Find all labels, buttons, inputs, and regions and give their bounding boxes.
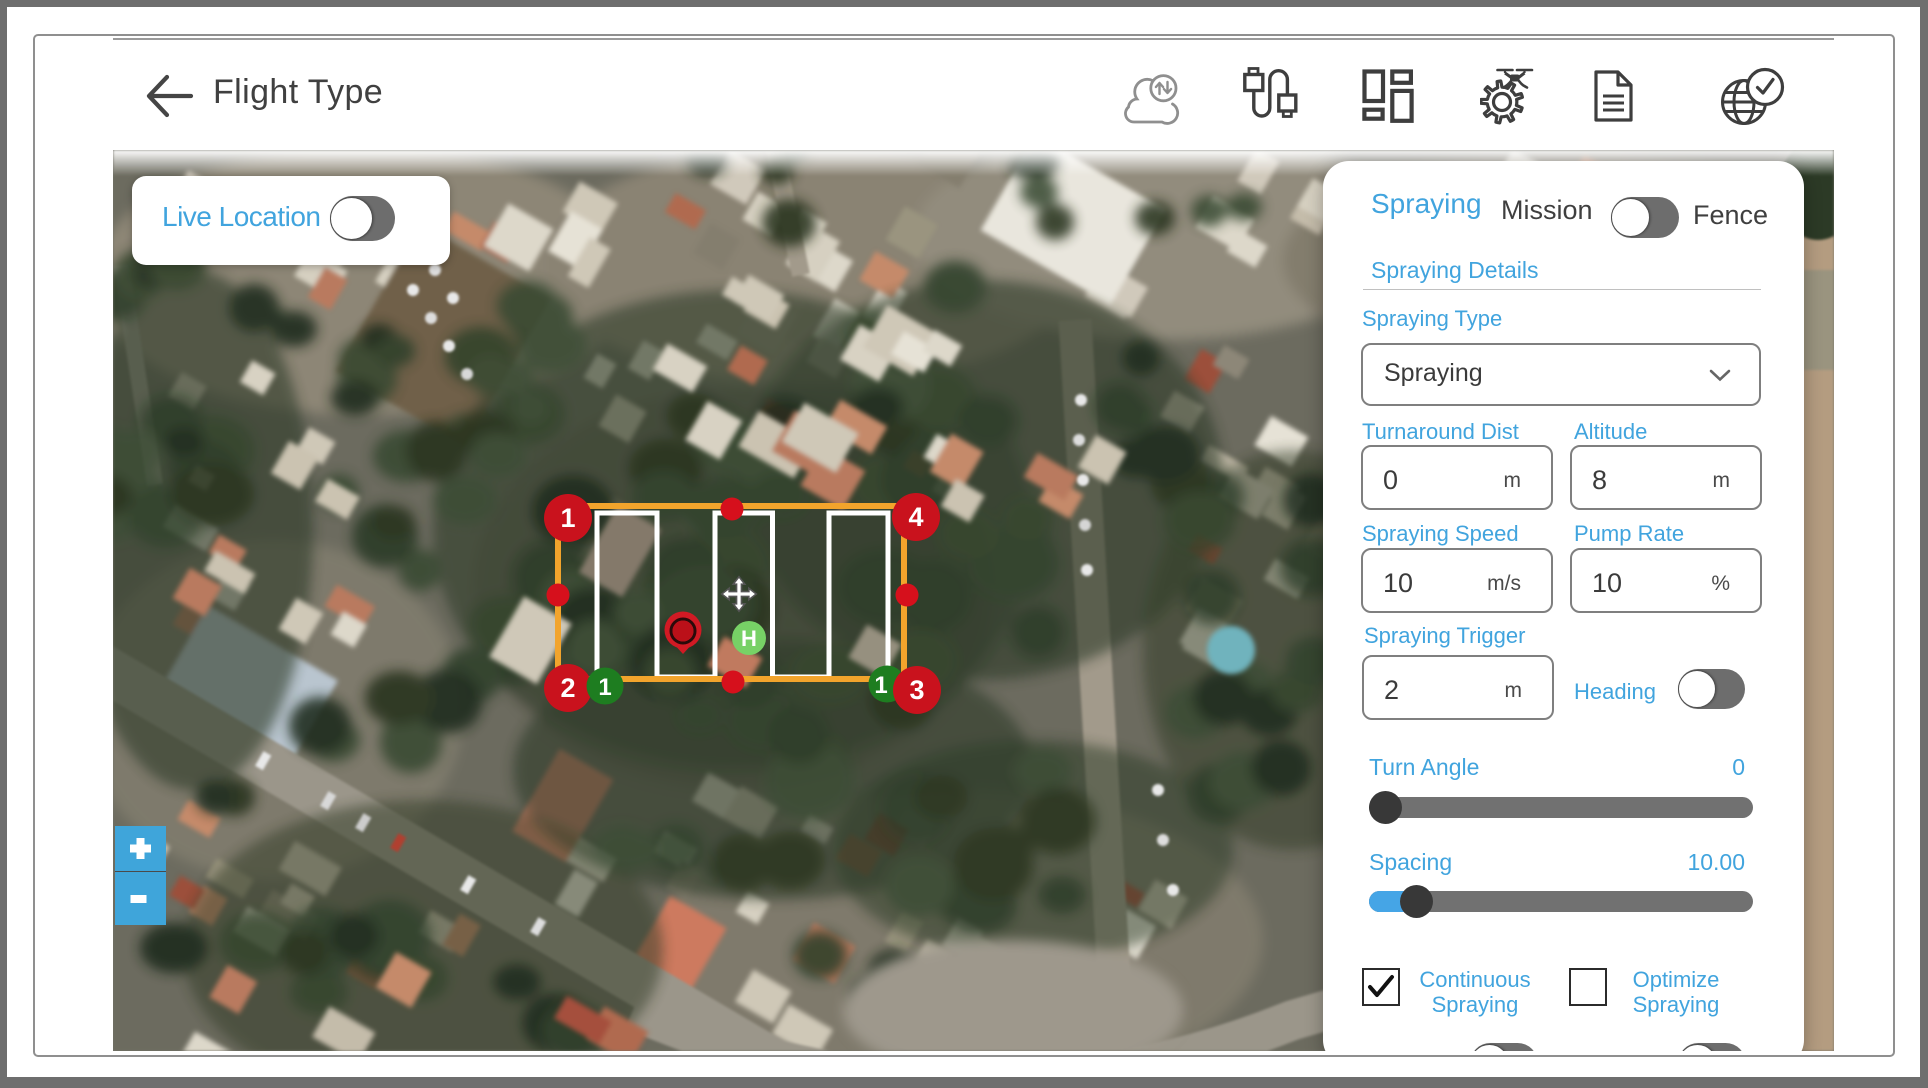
- svg-text:1: 1: [874, 672, 887, 699]
- svg-text:1: 1: [560, 503, 575, 533]
- svg-text:2: 2: [560, 673, 575, 703]
- svg-text:3: 3: [909, 675, 924, 705]
- svg-text:4: 4: [908, 502, 923, 532]
- svg-text:1: 1: [598, 674, 611, 701]
- svg-text:H: H: [741, 626, 757, 651]
